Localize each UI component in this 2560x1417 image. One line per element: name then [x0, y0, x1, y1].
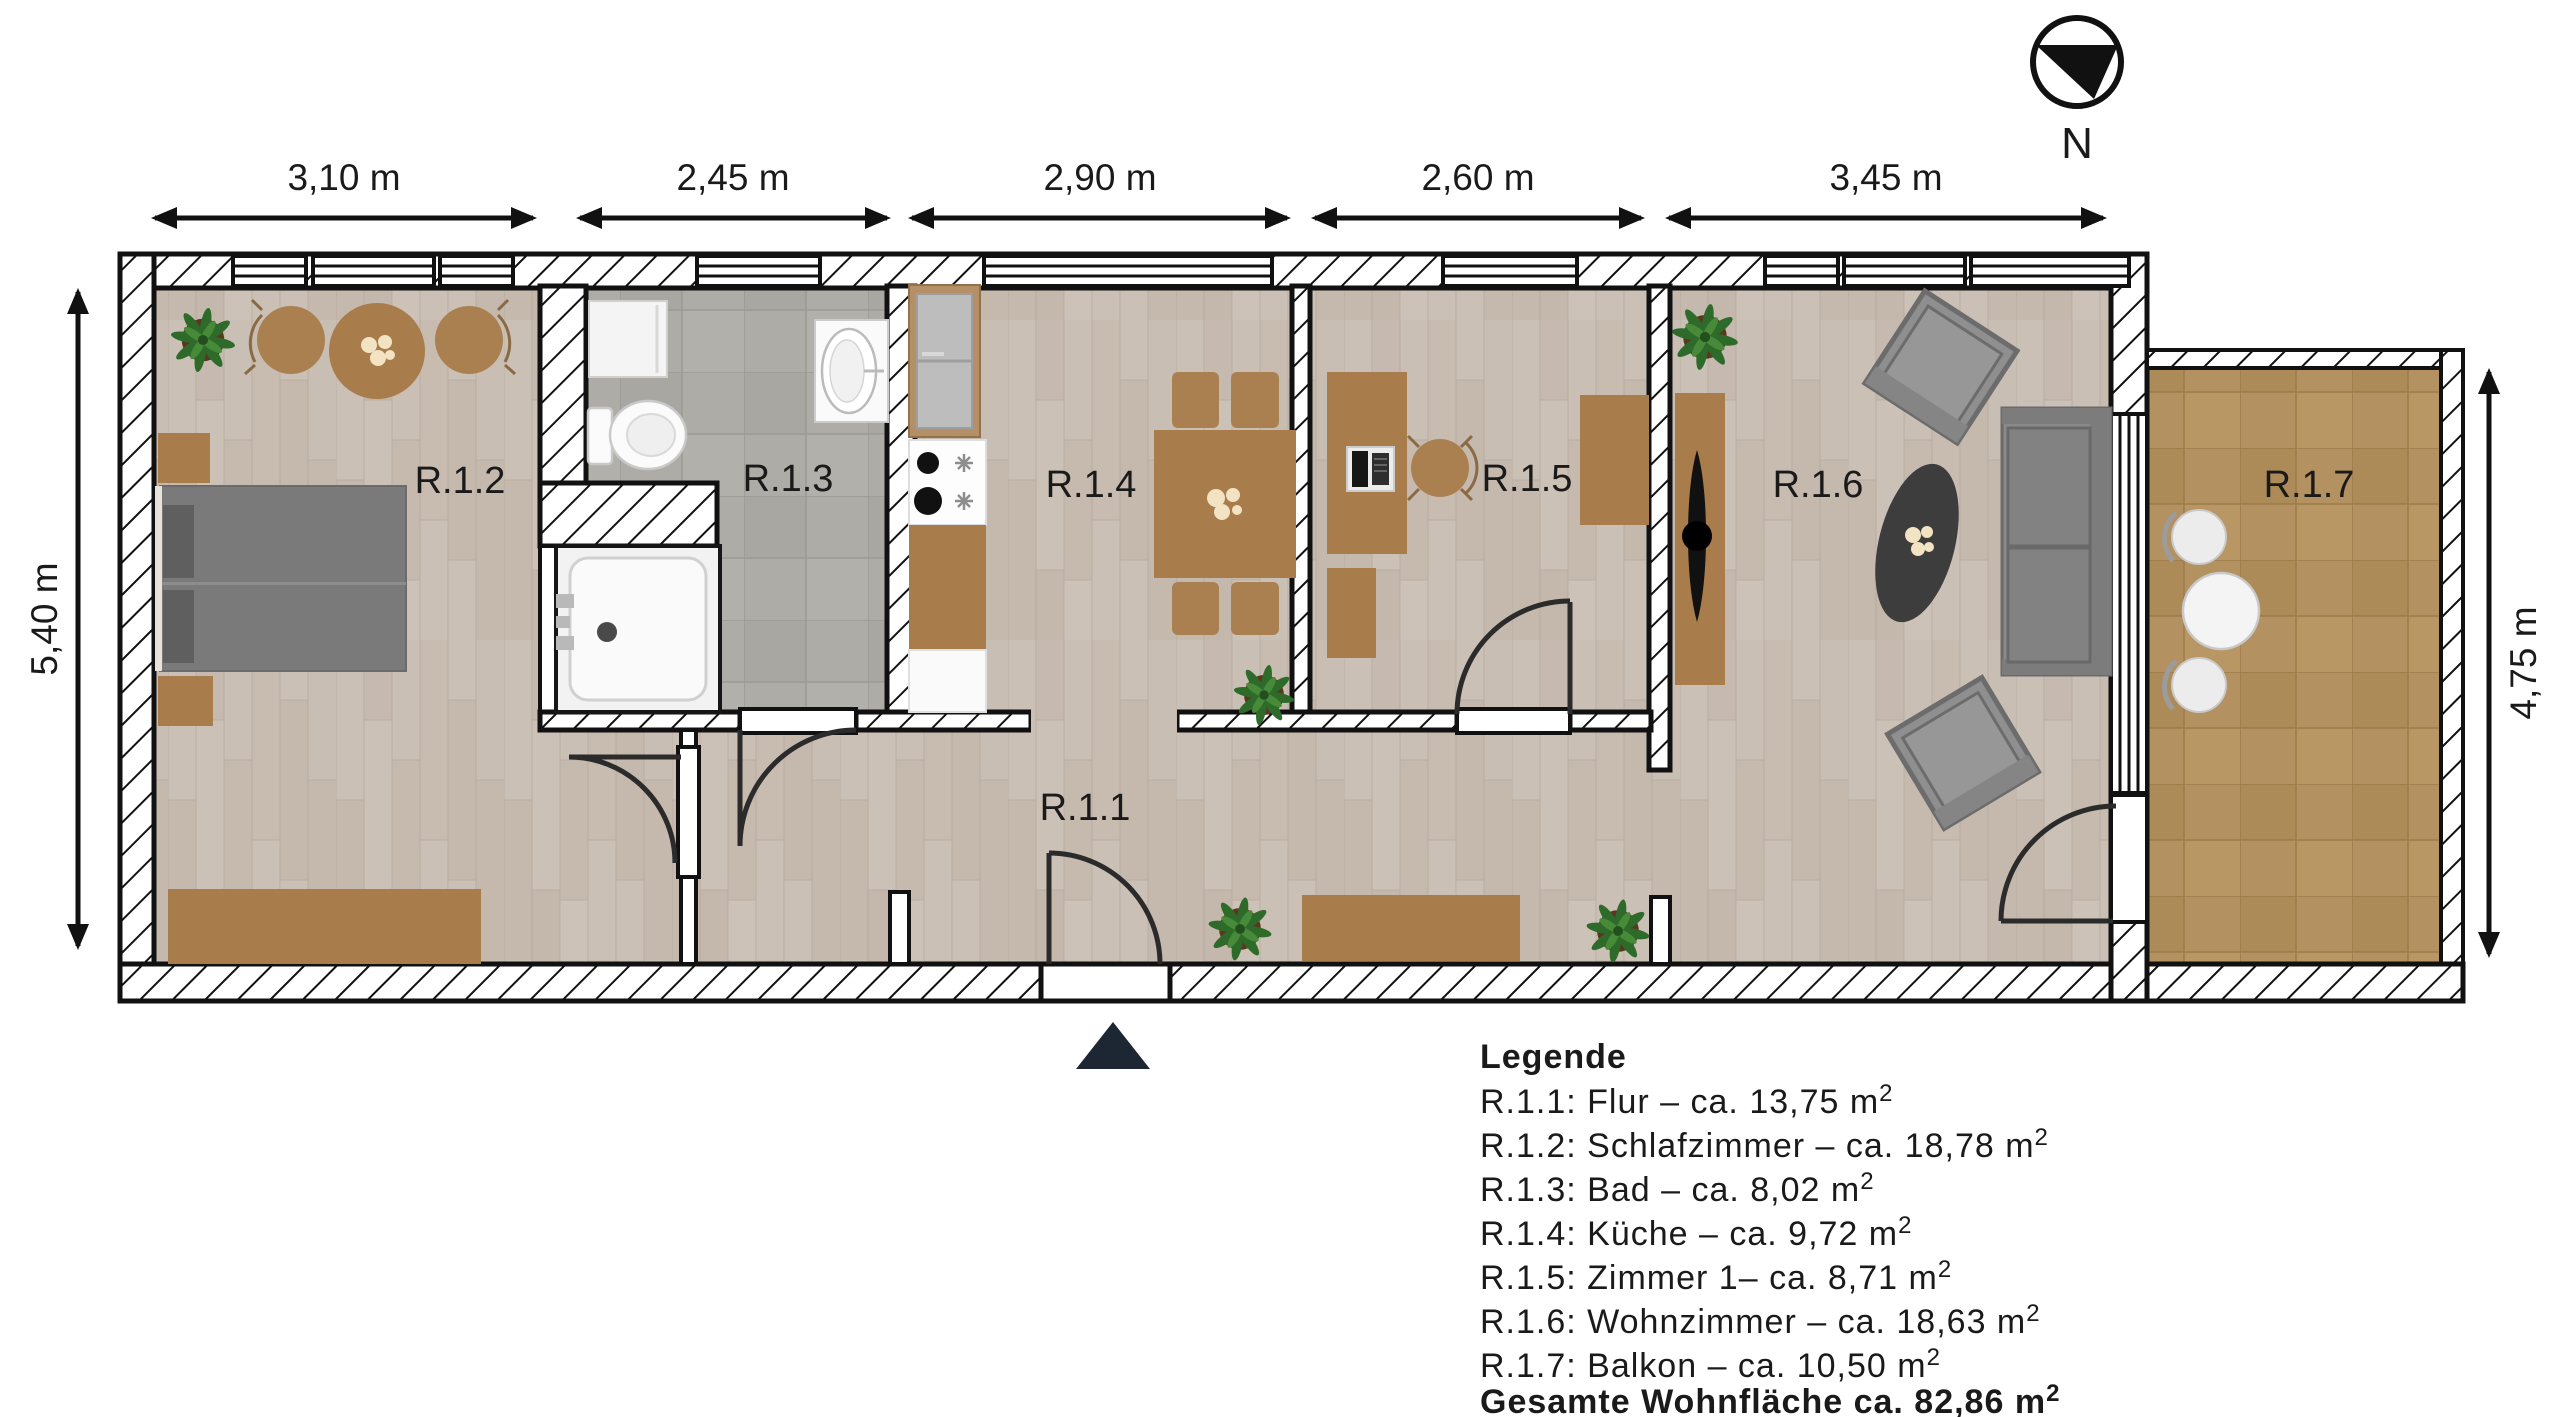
svg-text:5,40 m: 5,40 m — [24, 562, 65, 675]
svg-text:R.1.6: R.1.6 — [1773, 464, 1864, 506]
svg-text:3,10 m: 3,10 m — [287, 157, 400, 198]
svg-text:Gesamte Wohnfläche ca. 82,86 m: Gesamte Wohnfläche ca. 82,86 m2 — [1480, 1380, 2060, 1417]
svg-text:2,90 m: 2,90 m — [1043, 157, 1156, 198]
svg-text:R.1.1: Flur – ca. 13,75 m2: R.1.1: Flur – ca. 13,75 m2 — [1480, 1080, 1894, 1121]
svg-text:4,75 m: 4,75 m — [2503, 606, 2544, 719]
svg-text:R.1.2: Schlafzimmer – ca. 18,7: R.1.2: Schlafzimmer – ca. 18,78 m2 — [1480, 1124, 2049, 1165]
svg-text:R.1.1: R.1.1 — [1040, 787, 1131, 829]
svg-text:R.1.2: R.1.2 — [415, 460, 506, 502]
svg-text:R.1.3: Bad – ca. 8,02 m2: R.1.3: Bad – ca. 8,02 m2 — [1480, 1168, 1875, 1209]
svg-text:R.1.3: R.1.3 — [743, 458, 834, 500]
svg-text:R.1.6: Wohnzimmer – ca. 18,63: R.1.6: Wohnzimmer – ca. 18,63 m2 — [1480, 1300, 2041, 1341]
svg-text:N: N — [2061, 119, 2093, 168]
svg-text:R.1.5: Zimmer 1– ca. 8,71 m2: R.1.5: Zimmer 1– ca. 8,71 m2 — [1480, 1256, 1952, 1297]
svg-text:R.1.7: Balkon – ca. 10,50 m2: R.1.7: Balkon – ca. 10,50 m2 — [1480, 1344, 1941, 1385]
svg-text:2,45 m: 2,45 m — [676, 157, 789, 198]
svg-text:R.1.7: R.1.7 — [2264, 464, 2355, 506]
svg-text:Legende: Legende — [1480, 1038, 1627, 1076]
svg-text:R.1.4: R.1.4 — [1046, 464, 1137, 506]
svg-text:R.1.5: R.1.5 — [1482, 458, 1573, 500]
svg-text:R.1.4: Küche – ca. 9,72 m2: R.1.4: Küche – ca. 9,72 m2 — [1480, 1212, 1912, 1253]
svg-text:3,45 m: 3,45 m — [1829, 157, 1942, 198]
svg-text:2,60 m: 2,60 m — [1421, 157, 1534, 198]
